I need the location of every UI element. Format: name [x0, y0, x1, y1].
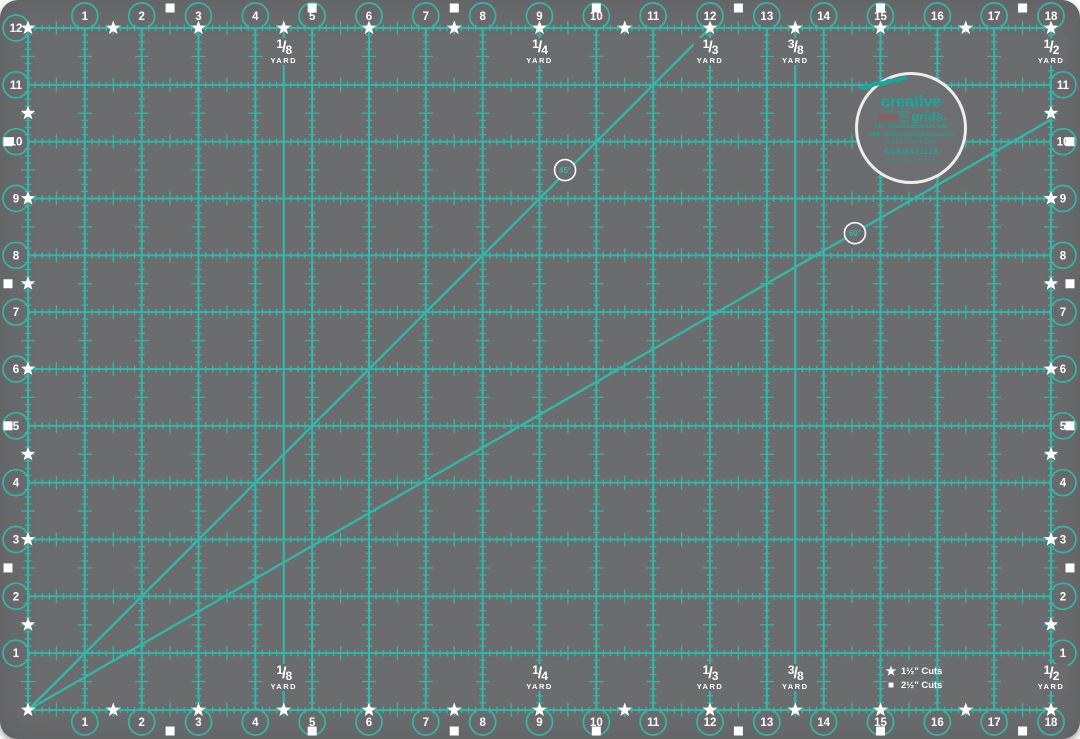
legend-label-15cuts: 1½" Cuts	[901, 666, 942, 677]
brand-word-grids: grids	[911, 110, 943, 124]
square-marker	[876, 727, 885, 736]
edge-number: 8	[13, 250, 20, 262]
edge-number: 18	[1045, 717, 1058, 729]
edge-number: 11	[647, 717, 660, 729]
star-icon: ★	[884, 664, 898, 678]
edge-number: 3	[13, 535, 19, 547]
star-marker	[1044, 703, 1058, 717]
registered-mark: ®	[943, 119, 947, 124]
brand-word-grids-row: The original NON-SLIP ruler from grids ®	[875, 109, 946, 124]
angle-badge: 60°	[844, 223, 865, 244]
edge-number: 9	[1060, 194, 1066, 206]
square-marker	[734, 727, 743, 736]
edge-number: 2	[13, 591, 19, 603]
square-marker	[4, 279, 13, 288]
edge-number: 16	[931, 717, 944, 729]
edge-number: 5	[13, 421, 20, 433]
yard-label: 1/4YARD	[523, 664, 556, 691]
star-marker	[873, 703, 887, 717]
edge-number: 7	[13, 307, 19, 319]
square-marker	[1066, 563, 1075, 572]
edge-number: 1	[13, 648, 20, 660]
cutting-mat: 45°60°1234567891011121314151617181234567…	[0, 0, 1080, 739]
edge-number: 13	[760, 11, 773, 23]
yard-label: 1/4YARD	[523, 38, 556, 65]
edge-number: 13	[760, 717, 773, 729]
square-marker	[592, 4, 601, 13]
edge-number: 12	[10, 23, 23, 35]
legend-label-25cuts: 2½" Cuts	[901, 680, 942, 691]
yard-label: 1/8YARD	[267, 38, 300, 65]
star-marker	[362, 703, 376, 717]
fox-icon	[858, 75, 910, 92]
made-in-label: MADE IN TAIWAN	[886, 158, 937, 163]
square-marker	[734, 4, 743, 13]
edge-number: 11	[10, 80, 23, 92]
cuts-legend: ★ 1½" Cuts ■ 2½" Cuts	[884, 664, 942, 692]
edge-number: 7	[423, 717, 429, 729]
brand-tagline: The original NON-SLIP ruler from	[875, 109, 909, 124]
star-marker	[191, 703, 205, 717]
edge-number: 18	[1045, 11, 1058, 23]
edge-number: 11	[1057, 80, 1070, 92]
square-marker	[1066, 137, 1075, 146]
square-marker	[308, 727, 317, 736]
edge-number: 3	[195, 717, 201, 729]
product-code: CGRMAT1218	[884, 148, 938, 156]
square-marker	[450, 727, 459, 736]
brand-logo: creative The original NON-SLIP ruler fro…	[855, 72, 967, 184]
edge-number: 4	[252, 11, 259, 23]
svg-text:45°: 45°	[559, 166, 571, 175]
square-marker	[592, 727, 601, 736]
square-marker	[4, 563, 13, 572]
yard-label: 1/3YARD	[694, 38, 727, 65]
star-marker	[532, 703, 546, 717]
edge-number: 5	[309, 11, 316, 23]
edge-number: 10	[590, 11, 603, 23]
edge-number: 4	[252, 717, 259, 729]
edge-number: 11	[647, 11, 660, 23]
edge-number: 14	[817, 11, 830, 23]
edge-number: 6	[1060, 364, 1066, 376]
square-marker	[4, 421, 13, 430]
legend-row-square: ■ 2½" Cuts	[884, 678, 942, 692]
edge-number: 17	[988, 717, 1001, 729]
square-marker	[166, 4, 175, 13]
edge-number: 7	[423, 11, 429, 23]
edge-number: 2	[138, 11, 144, 23]
angle-badge: 45°	[555, 160, 576, 181]
edge-number: 7	[1060, 307, 1066, 319]
logo-url-uk: UK : www.creativegrids.com	[875, 125, 948, 131]
edge-number: 8	[479, 717, 486, 729]
yard-label: 3/8YARD	[779, 38, 812, 65]
edge-number: 14	[817, 717, 830, 729]
edge-number: 9	[536, 717, 542, 729]
edge-number: 3	[1060, 535, 1066, 547]
yard-label: 1/2YARD	[1035, 38, 1068, 65]
yard-label: 1/3YARD	[694, 664, 727, 691]
legend-row-star: ★ 1½" Cuts	[884, 664, 942, 678]
yard-label: 1/8YARD	[267, 664, 300, 691]
square-marker	[1018, 727, 1027, 736]
square-marker	[876, 4, 885, 13]
yard-label: 1/2YARD	[1035, 664, 1068, 691]
logo-url-usa: USA : www.creativegridsusa.com	[868, 133, 953, 139]
svg-text:60°: 60°	[849, 229, 861, 238]
edge-number: 8	[1060, 250, 1067, 262]
edge-number: 6	[13, 364, 19, 376]
square-icon: ■	[884, 680, 898, 691]
square-marker	[1066, 421, 1075, 430]
edge-number: 12	[704, 717, 717, 729]
logo-copyright: © 2014 Creative Grids	[886, 140, 936, 145]
star-marker	[703, 703, 717, 717]
edge-number: 9	[13, 194, 19, 206]
edge-number: 1	[82, 717, 89, 729]
edge-number: 8	[479, 11, 486, 23]
edge-number: 16	[931, 11, 944, 23]
edge-number: 1	[82, 11, 89, 23]
edge-number: 17	[988, 11, 1001, 23]
product-image: 45°60°1234567891011121314151617181234567…	[0, 0, 1080, 739]
edge-number: 6	[366, 717, 372, 729]
edge-number: 2	[138, 717, 144, 729]
edge-number: 15	[874, 11, 887, 23]
yard-label: 3/8YARD	[779, 664, 812, 691]
edge-number: 2	[1060, 591, 1066, 603]
square-marker	[1018, 4, 1027, 13]
square-marker	[4, 137, 13, 146]
edge-number: 1	[1060, 648, 1067, 660]
square-marker	[308, 4, 317, 13]
square-marker	[1066, 279, 1075, 288]
square-marker	[166, 727, 175, 736]
edge-number: 4	[13, 478, 20, 490]
square-marker	[450, 4, 459, 13]
edge-number: 4	[1060, 478, 1067, 490]
